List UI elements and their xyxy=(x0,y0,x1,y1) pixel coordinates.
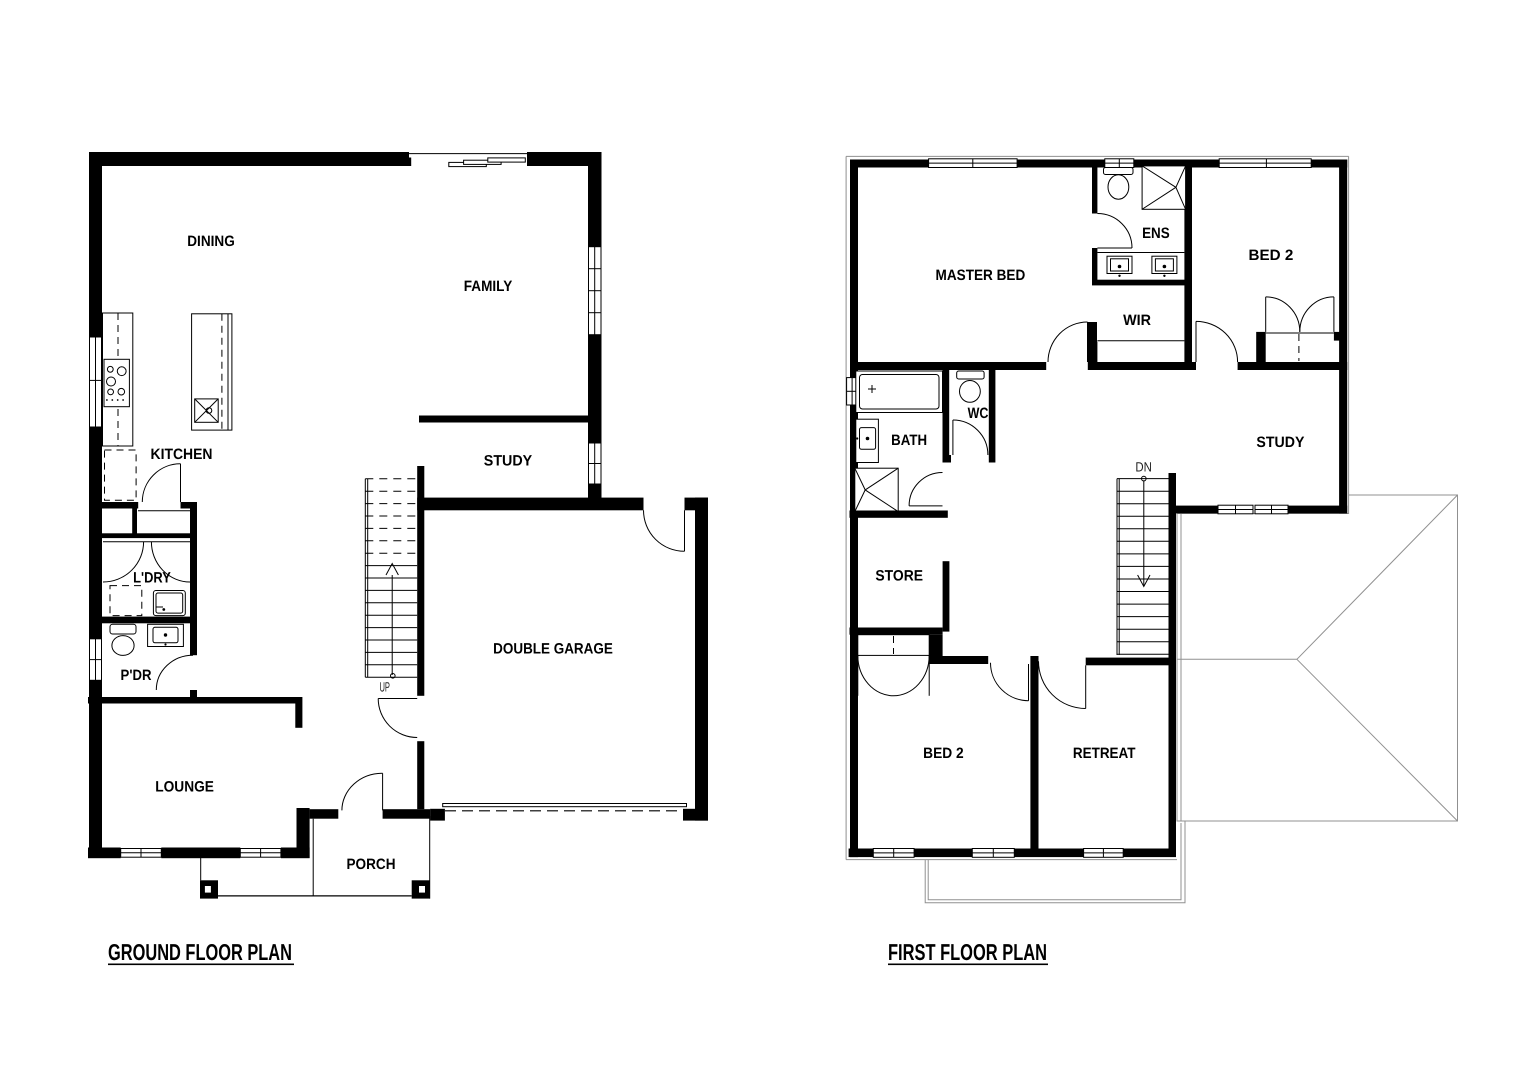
svg-text:STORE: STORE xyxy=(875,568,923,585)
svg-text:WC: WC xyxy=(968,405,989,422)
svg-text:STUDY: STUDY xyxy=(1256,434,1304,451)
svg-text:RETREAT: RETREAT xyxy=(1073,745,1136,762)
svg-text:MASTER BED: MASTER BED xyxy=(936,267,1026,284)
svg-text:DINING: DINING xyxy=(187,233,235,250)
svg-text:FAMILY: FAMILY xyxy=(464,278,513,295)
svg-text:STUDY: STUDY xyxy=(484,453,532,470)
svg-text:BATH: BATH xyxy=(891,432,927,449)
svg-text:LOUNGE: LOUNGE xyxy=(155,778,214,795)
svg-text:PORCH: PORCH xyxy=(347,856,396,873)
svg-text:GROUND FLOOR PLAN: GROUND FLOOR PLAN xyxy=(108,939,292,965)
svg-text:WIR: WIR xyxy=(1123,312,1151,329)
svg-text:BED 2: BED 2 xyxy=(1249,247,1294,264)
svg-text:ENS: ENS xyxy=(1142,225,1170,242)
svg-text:P'DR: P'DR xyxy=(121,667,152,684)
svg-text:KITCHEN: KITCHEN xyxy=(151,446,213,463)
svg-text:L'DRY: L'DRY xyxy=(133,570,171,587)
svg-text:DOUBLE GARAGE: DOUBLE GARAGE xyxy=(493,641,613,658)
svg-text:DN: DN xyxy=(1135,460,1152,475)
svg-text:BED 2: BED 2 xyxy=(923,745,964,762)
svg-text:UP: UP xyxy=(379,680,390,695)
svg-text:FIRST FLOOR PLAN: FIRST FLOOR PLAN xyxy=(888,939,1047,965)
